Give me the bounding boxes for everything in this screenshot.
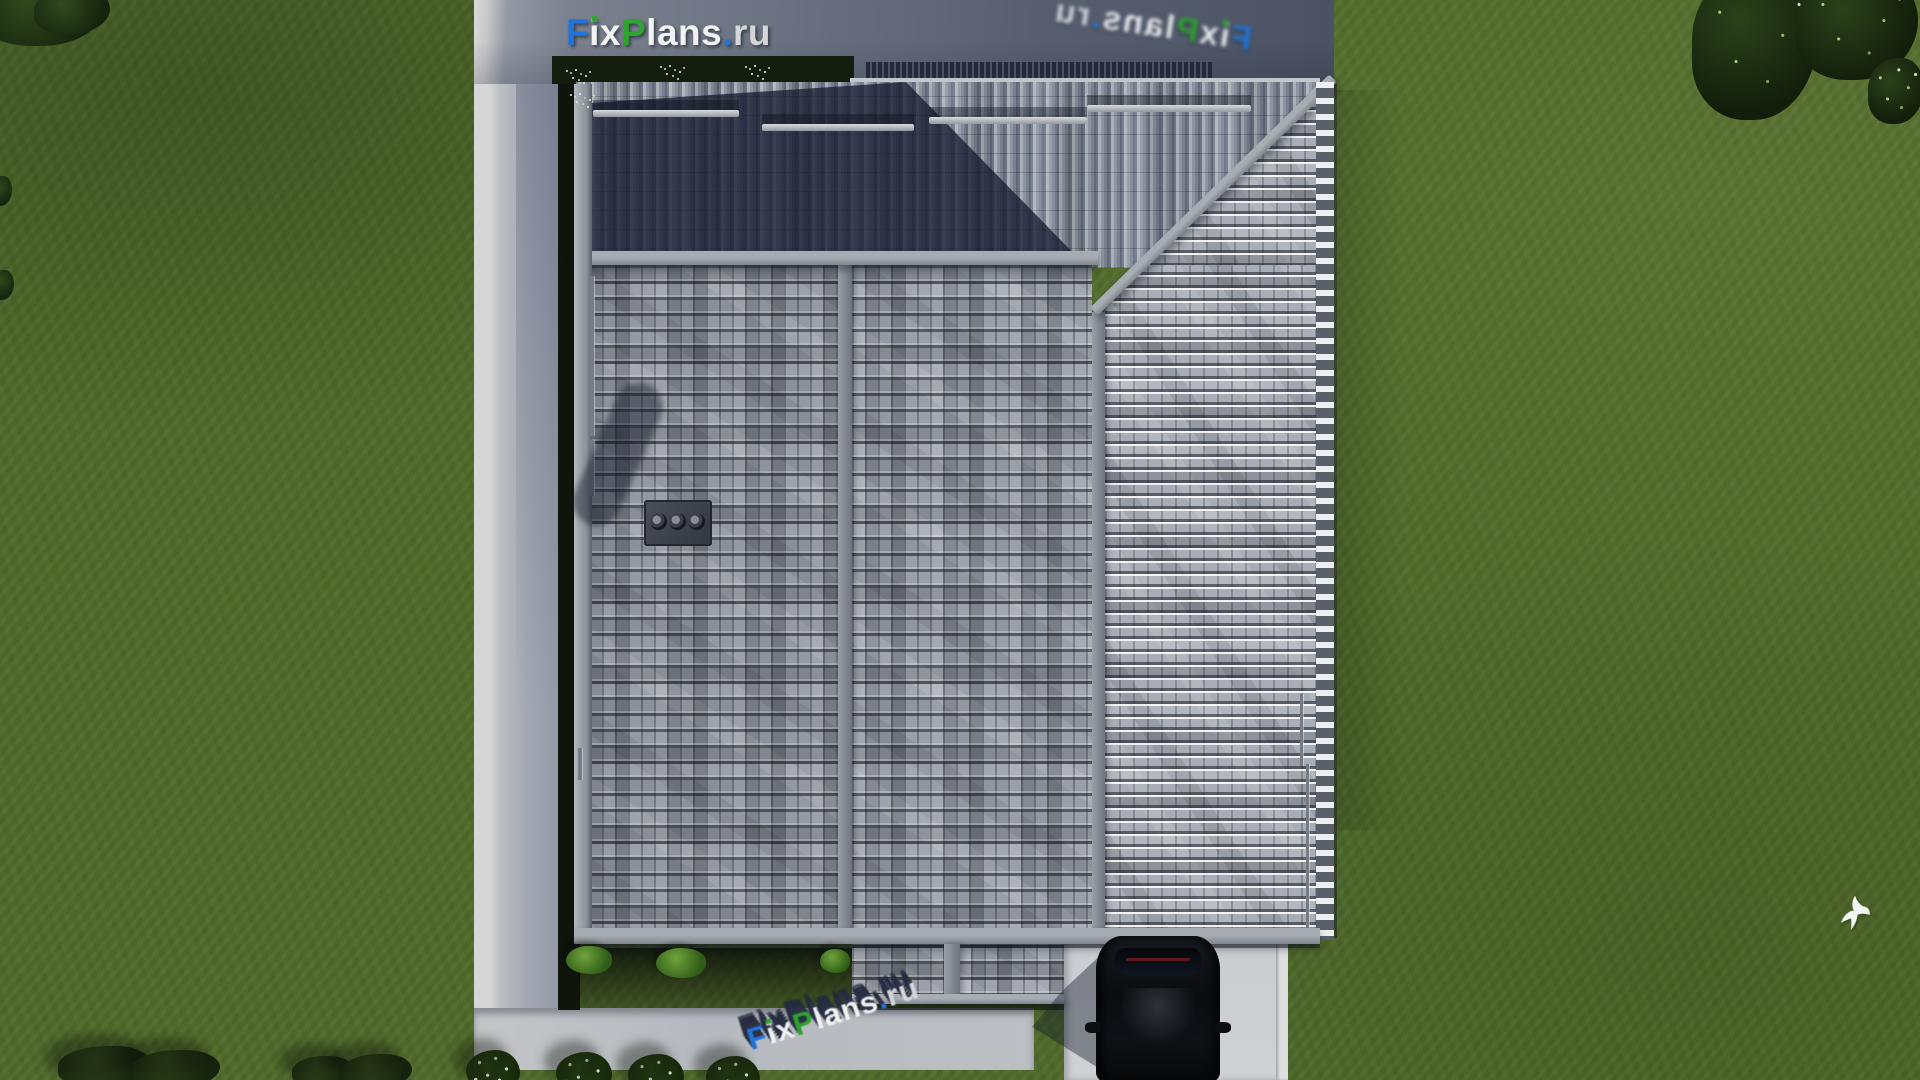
car-tail-lights (1126, 958, 1190, 961)
brand-letter: r (733, 12, 748, 54)
roof-corner-plants (570, 94, 572, 96)
brand-letter: u (748, 12, 771, 54)
brand-letter: P (621, 12, 646, 54)
roof-ladder-rail (590, 276, 594, 436)
chimney-flue (669, 513, 686, 530)
brand-letter-dot (1223, 20, 1229, 26)
chimney-flue (650, 513, 667, 530)
wall-shrub (566, 946, 612, 974)
roof-ladder-rail (578, 748, 582, 780)
chimney-flue (688, 513, 705, 530)
car-roof-sheen (1122, 988, 1194, 1048)
porch-roof-right (958, 944, 1064, 996)
roof-north-slope (576, 82, 1320, 268)
brand-letter: s (701, 12, 722, 54)
brand-letter-dot (592, 16, 598, 22)
roof-ridge-strip-right (1092, 312, 1105, 940)
porch-ridge-strip (944, 944, 960, 1000)
brand-logo-top-left: FixPlans.ru (566, 12, 771, 54)
brand-letter: . (722, 12, 733, 54)
roof-east-slope (1105, 265, 1316, 940)
roof-east-seam (1334, 84, 1337, 938)
render-canvas: FixPlans.ru FixPlans.ru FixPlans.ru (0, 0, 1920, 1080)
bush-bottom-left (342, 1054, 412, 1080)
roof-ridge-strip-left (838, 265, 852, 940)
snow-guard-rail (1087, 105, 1251, 112)
roof-east-tile-ends (1316, 82, 1334, 940)
wall-shrub (656, 948, 706, 978)
car-rear-window (1115, 948, 1201, 976)
car-mirror-right (1215, 1022, 1231, 1033)
brand-letter: n (678, 12, 701, 54)
north-hedge (552, 56, 854, 84)
snow-guard-rail (929, 117, 1087, 124)
roof-middle-slope (852, 265, 1092, 940)
brand-letter: x (600, 12, 621, 54)
black-car (1096, 936, 1220, 1080)
hedge-flowers (660, 66, 662, 68)
lawn-shading (1337, 90, 1403, 830)
hedge-flowers (566, 70, 568, 72)
brand-letter: l (646, 12, 657, 54)
brand-letter: a (657, 12, 678, 54)
tree-top-right (1868, 58, 1920, 124)
bush-bottom-left (132, 1050, 220, 1080)
brand-letter: F (566, 12, 589, 54)
wall-shrub (820, 949, 850, 973)
south-wall-shadow (578, 948, 852, 1008)
roof-ladder-rail (1300, 694, 1303, 766)
chimney (644, 500, 712, 546)
brand-letter: i (589, 12, 600, 54)
roof-left-slope (576, 265, 838, 940)
roof-main-ridge (574, 251, 1098, 265)
roof-ladder-rail (1306, 764, 1309, 940)
car-mirror-left (1085, 1022, 1101, 1033)
hedge-flowers (745, 66, 747, 68)
snow-guard-rail (593, 110, 739, 117)
brand-letter-dot (765, 1018, 771, 1024)
parking-pad-curb (1276, 938, 1288, 1080)
snow-guard-rail (762, 124, 914, 131)
